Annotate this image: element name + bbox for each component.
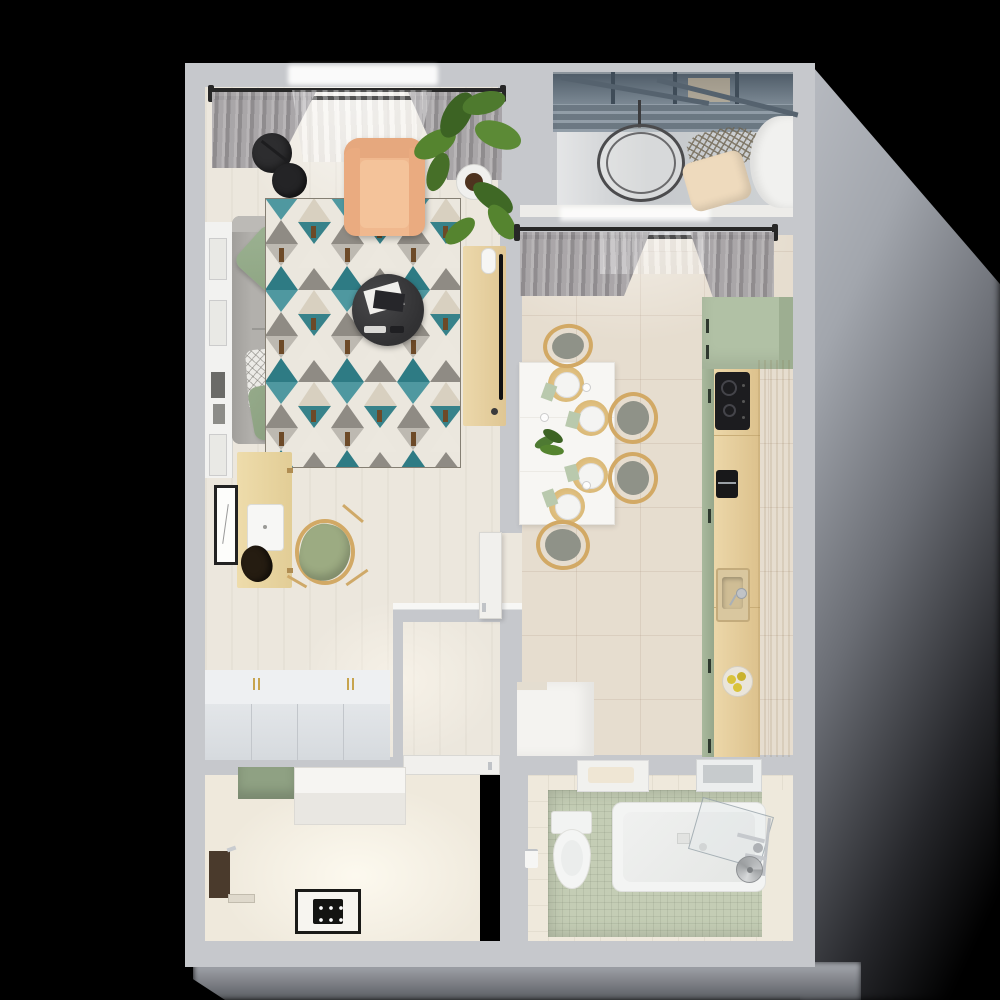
kitchen-sheer-curtain (600, 232, 710, 274)
living-window-glow (288, 65, 438, 85)
wall-stub-vertical (393, 620, 403, 757)
kitchen-tall-column (758, 360, 793, 757)
wardrobe-door-seam (297, 704, 298, 760)
cast-shadow-right (800, 58, 1000, 1000)
fruit (733, 683, 742, 692)
dining-chair-seat (543, 527, 582, 563)
plate (555, 494, 581, 520)
wall-bathroom-left (500, 775, 528, 943)
laptop (247, 504, 284, 551)
wardrobe-door-seam (343, 704, 344, 760)
console-knob (491, 408, 498, 415)
plate (554, 372, 580, 398)
desk-hook (287, 568, 293, 573)
cabinet-handle (706, 319, 709, 333)
mirror-cabinet (696, 759, 762, 792)
shower-drain-grate (313, 899, 343, 924)
hanging-chair (597, 124, 685, 202)
shelf-frame-1 (209, 238, 227, 280)
armchair-arm-left (344, 148, 360, 236)
speaker (481, 248, 496, 274)
towel-center (747, 867, 753, 873)
threshold-strip (228, 894, 255, 903)
coffee-machine-trim (718, 482, 736, 484)
dining-chair-seat (614, 458, 651, 497)
floor-lamp-shade-small (272, 163, 307, 198)
shower-drain-plate (295, 889, 361, 934)
drinking-glass (582, 481, 591, 490)
mirror-glass (703, 765, 753, 783)
kitchen-rod-finial-left (514, 224, 520, 241)
dining-chair-seat (614, 398, 652, 438)
desk-hook (287, 468, 293, 473)
laptop-logo (263, 525, 267, 529)
cabinet-handle (706, 345, 709, 359)
towel-rail (209, 851, 230, 898)
bathtub-overflow (677, 833, 690, 844)
cabinet-handle (708, 509, 711, 523)
drinking-glass (582, 383, 591, 392)
cabinet-handle (708, 659, 711, 673)
wardrobe-handle-gold (253, 678, 255, 690)
bathroom-door (403, 755, 500, 775)
cooktop-burner (721, 380, 737, 396)
kitchen-sink (716, 568, 750, 622)
place-setting (549, 488, 585, 524)
bathroom-right-wall-tile (762, 790, 793, 940)
tv-console (463, 246, 506, 426)
toilet-seat-inner (561, 840, 583, 876)
hanging-chair-inner-ring (606, 132, 676, 194)
cast-shadow-bottom (193, 962, 861, 1000)
remote-light (364, 326, 386, 333)
wall-outer-bottom (185, 941, 815, 967)
cabinet-handle (708, 739, 711, 753)
fruit-bowl (722, 666, 753, 697)
cooktop-burner (723, 404, 736, 417)
bathroom-shelf (577, 760, 649, 792)
wall-stub-horizontal (393, 603, 522, 622)
kitchen-white-cabinet-block (517, 682, 594, 756)
wall-outer-left (185, 63, 205, 965)
cooktop (715, 372, 750, 430)
tv-screen-edge (499, 254, 503, 400)
plate (579, 406, 605, 432)
plant-leaf (440, 213, 479, 250)
shelf-frame-2 (209, 300, 227, 346)
folded-towel (588, 767, 634, 783)
cooktop-knob (742, 384, 745, 387)
bathroom-door-handle (488, 762, 492, 770)
utility-green-cabinet (238, 767, 295, 799)
remote-dark (390, 326, 404, 333)
dining-chair-seat (550, 331, 585, 361)
coffee-machine (716, 470, 738, 498)
floor-plan-render: Top-down 3D render of a one-bedroom apar… (0, 0, 1000, 1000)
wardrobe-top-face (205, 670, 390, 706)
open-interior-door (479, 532, 502, 619)
dining-table (519, 362, 615, 525)
cooktop-knob (742, 400, 745, 403)
kitchen-cabinet-green-top (702, 297, 793, 369)
drinking-glass (540, 413, 549, 422)
place-setting (548, 366, 584, 402)
framed-wall-art (214, 485, 238, 565)
shower-head (753, 843, 763, 853)
centerpiece-leaf (539, 443, 564, 456)
wardrobe-handle-gold (347, 678, 349, 690)
toilet-paper-holder (525, 849, 538, 868)
balcony-metal-grate (553, 104, 793, 132)
counter-seam (714, 435, 760, 436)
potted-plant (412, 92, 512, 257)
shelf-photo-2 (213, 404, 225, 424)
sink-faucet (736, 588, 747, 599)
fruit (737, 672, 746, 681)
cabinet-edge (517, 682, 547, 690)
door-handle (482, 603, 486, 612)
place-setting (573, 400, 609, 436)
rolled-towel (736, 856, 763, 883)
table-centerpiece-plant (532, 427, 566, 461)
shelf-photo-1 (211, 372, 225, 398)
cooktop-knob (742, 416, 745, 419)
coffee-table (352, 274, 424, 346)
art-sketch-line (222, 504, 229, 544)
wardrobe-door-seam (251, 704, 252, 760)
wardrobe-front-face (205, 704, 390, 760)
wall-outer-right (793, 63, 815, 965)
cabinet-handle (708, 389, 711, 403)
kitchen-window-glow (560, 207, 710, 221)
wall-shelf-unit (205, 222, 233, 478)
armchair-seat (360, 160, 409, 228)
shelf-frame-3 (209, 434, 227, 476)
utility-white-cabinet (294, 767, 406, 825)
